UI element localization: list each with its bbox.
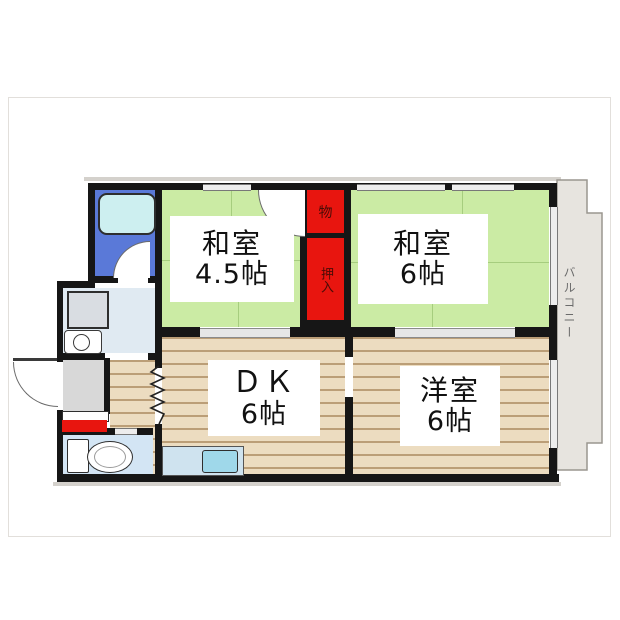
room-label-washitsu45: 和室 4.5帖 [170,216,294,302]
room-name: 和室 [202,228,262,259]
room-size: 6帖 [400,260,446,290]
zigzag-divider [0,0,620,620]
room-label-washitsu6: 和室 6帖 [358,214,488,304]
room-label-youshitsu: 洋室 6帖 [400,366,500,446]
room-name: ＤＫ [232,366,296,400]
room-size: 4.5帖 [195,260,269,290]
room-size: 6帖 [427,407,473,437]
room-label-dk: ＤＫ 6帖 [208,360,320,436]
room-name: 和室 [393,228,453,259]
room-name: 洋室 [420,375,480,406]
floorplan-canvas: バルコニー 物 押入 [0,0,620,620]
room-size: 6帖 [241,400,287,430]
